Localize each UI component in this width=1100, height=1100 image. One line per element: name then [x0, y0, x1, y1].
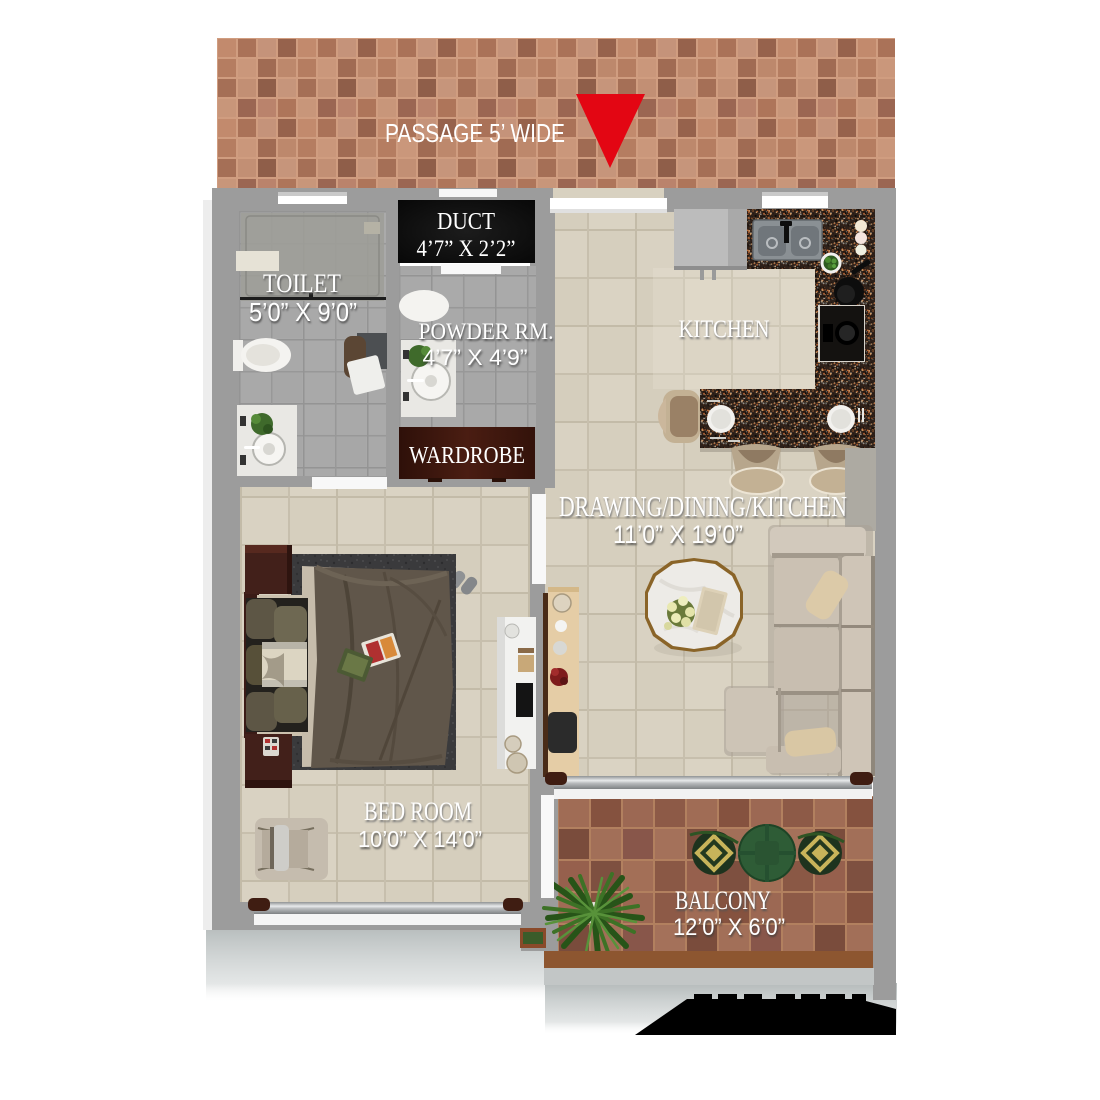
- svg-text:DUCT: DUCT: [437, 209, 495, 235]
- svg-text:DRAWING/DINING/KITCHEN: DRAWING/DINING/KITCHEN: [559, 492, 847, 523]
- svg-text:PASSAGE 5’ WIDE: PASSAGE 5’ WIDE: [385, 118, 565, 148]
- svg-text:11’0” X 19’0”: 11’0” X 19’0”: [613, 521, 743, 549]
- svg-text:4’7” X 4’9”: 4’7” X 4’9”: [423, 345, 528, 370]
- svg-text:5’0” X 9’0”: 5’0” X 9’0”: [249, 297, 357, 327]
- svg-text:KITCHEN: KITCHEN: [679, 316, 770, 343]
- svg-text:12’0” X 6’0”: 12’0” X 6’0”: [673, 914, 785, 941]
- svg-text:10’0” X 14’0”: 10’0” X 14’0”: [358, 826, 482, 852]
- svg-text:TOILET: TOILET: [263, 269, 341, 298]
- svg-text:4’7” X 2’2”: 4’7” X 2’2”: [417, 236, 516, 261]
- svg-text:BED ROOM: BED ROOM: [364, 797, 472, 826]
- svg-text:WARDROBE: WARDROBE: [409, 443, 525, 469]
- svg-text:BALCONY: BALCONY: [675, 886, 771, 915]
- svg-text:POWDER RM.: POWDER RM.: [419, 319, 554, 344]
